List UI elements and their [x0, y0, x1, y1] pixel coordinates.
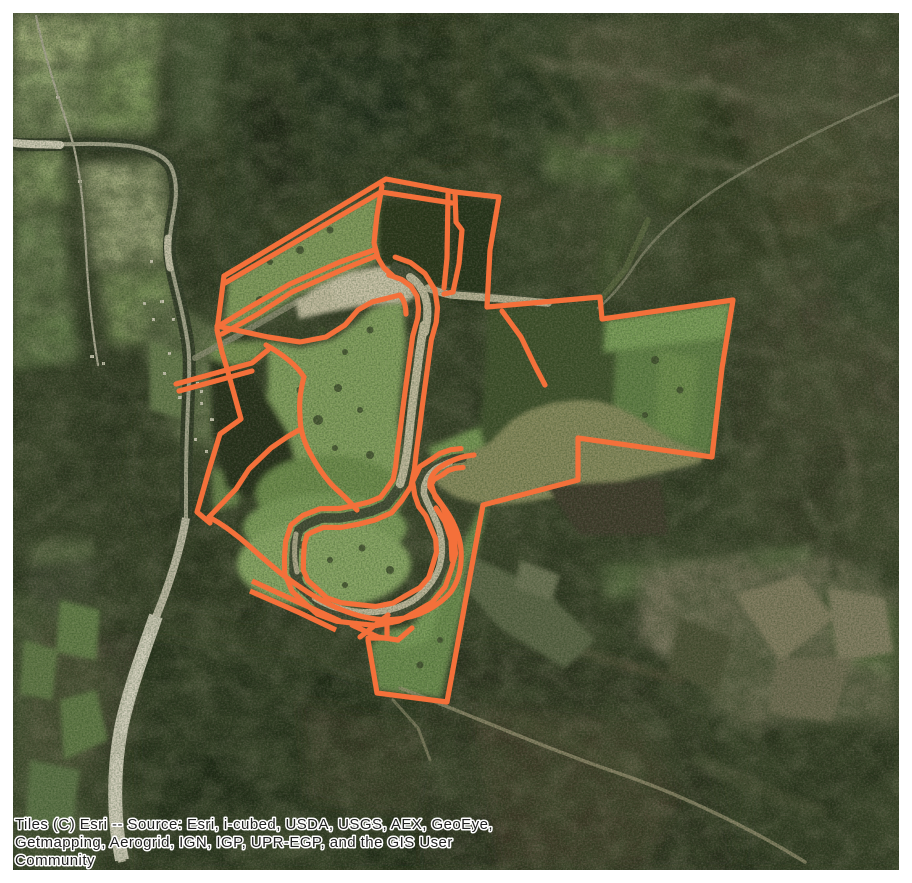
svg-text:Tiles (C) Esri -- Source: Esri: Tiles (C) Esri -- Source: Esri, i-cubed,… [15, 816, 493, 833]
svg-text:Getmapping, Aerogrid, IGN, IGP: Getmapping, Aerogrid, IGN, IGP, UPR-EGP,… [15, 834, 453, 851]
svg-text:Community: Community [15, 852, 95, 869]
